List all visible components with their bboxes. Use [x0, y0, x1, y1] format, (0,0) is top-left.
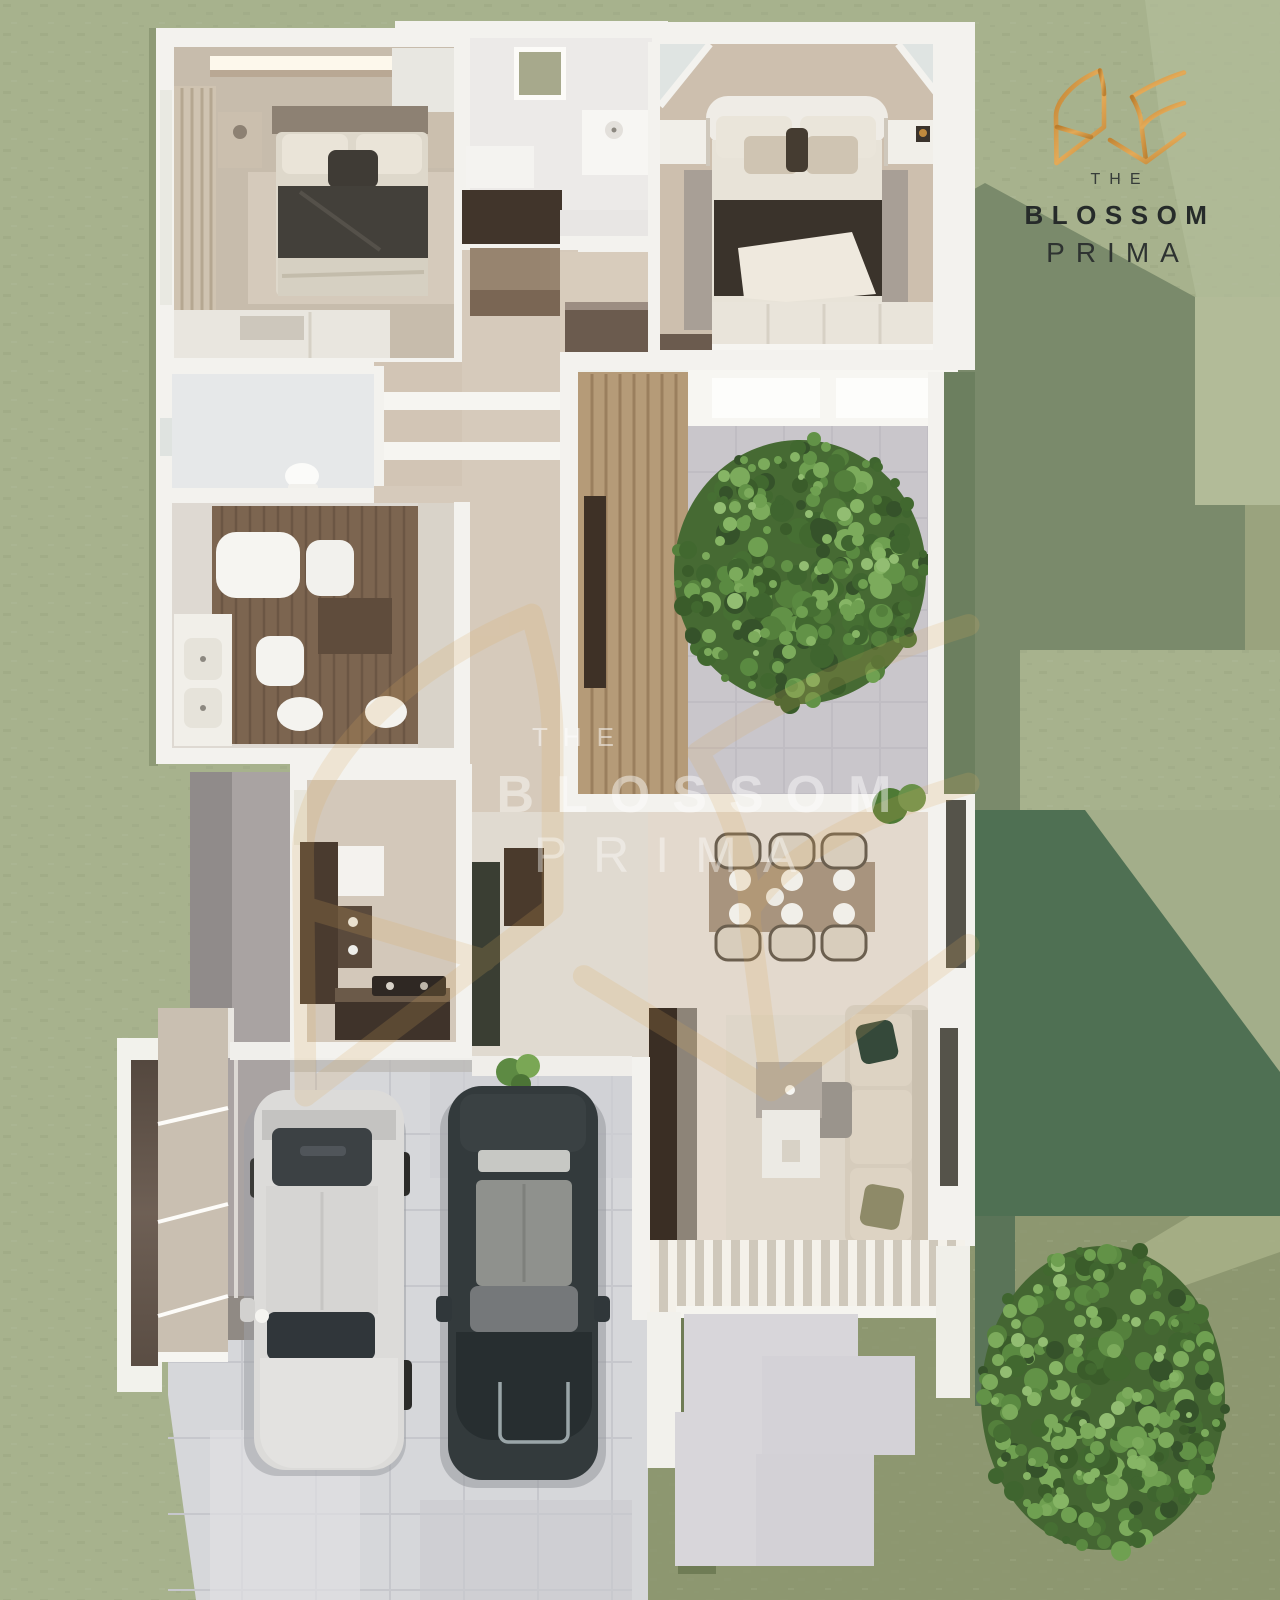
- svg-text:THE: THE: [532, 722, 629, 752]
- svg-text:THE: THE: [1091, 171, 1150, 188]
- svg-text:PRIMA: PRIMA: [1046, 237, 1190, 268]
- svg-text:BLOSSOM: BLOSSOM: [1025, 200, 1216, 230]
- svg-text:BLOSSOM: BLOSSOM: [497, 766, 914, 824]
- svg-text:PRIMA: PRIMA: [534, 827, 822, 883]
